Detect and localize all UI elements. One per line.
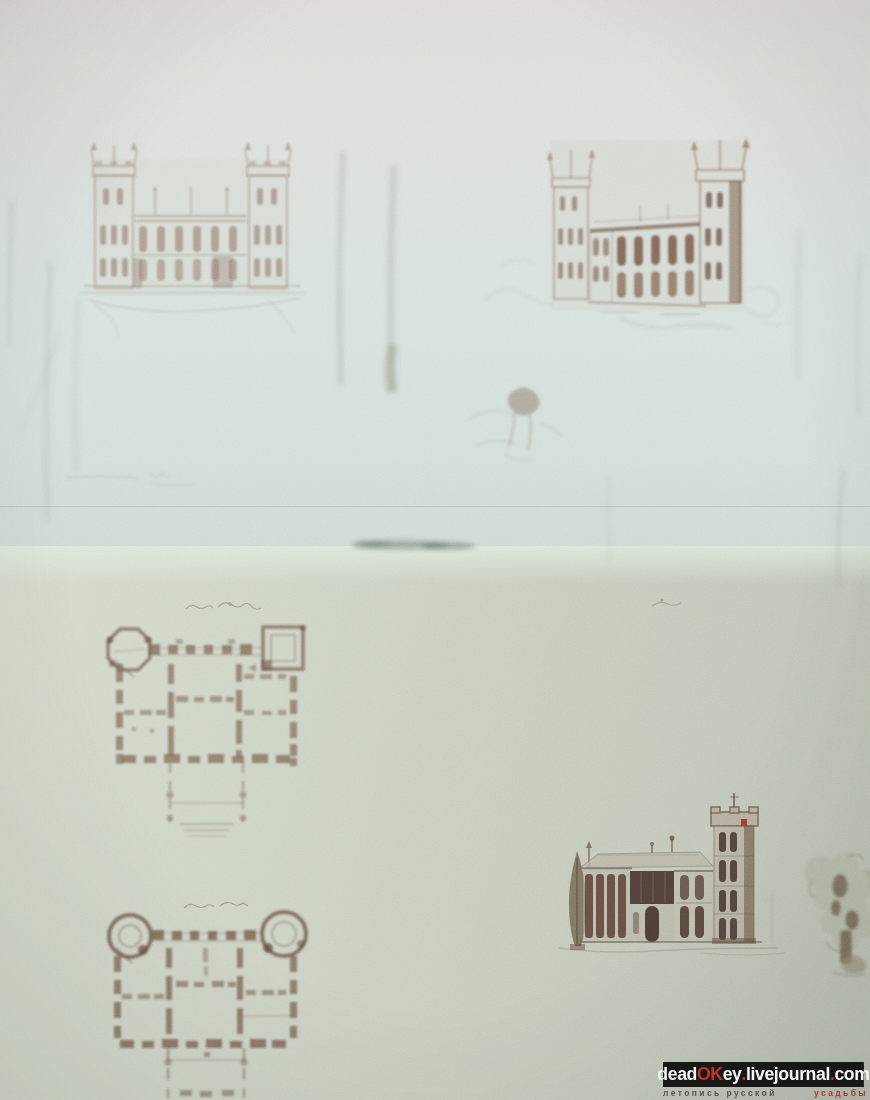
watermark-text-part: ey bbox=[723, 1064, 742, 1085]
watermark-subtitle: летопись русской усадьбы bbox=[663, 1088, 868, 1098]
watermark-text-part: livejournal bbox=[746, 1064, 830, 1085]
photo-of-architectural-sketches: deadOKey.livejournal.com летопись русско… bbox=[0, 0, 870, 1100]
watermark-text-part: com bbox=[834, 1064, 869, 1085]
watermark: deadOKey.livejournal.com летопись русско… bbox=[663, 1062, 868, 1098]
watermark-text-part: dead bbox=[657, 1064, 697, 1085]
watermark-subtitle-left: летопись русской bbox=[663, 1088, 777, 1098]
top-sheet-paper bbox=[0, 0, 870, 548]
watermark-text-part: OK bbox=[697, 1064, 723, 1085]
watermark-url: deadOKey.livejournal.com bbox=[663, 1062, 864, 1087]
bottom-sheet-paper bbox=[0, 546, 870, 1100]
sheet-edge-line bbox=[0, 506, 870, 507]
watermark-subtitle-right: усадьбы bbox=[814, 1088, 868, 1098]
